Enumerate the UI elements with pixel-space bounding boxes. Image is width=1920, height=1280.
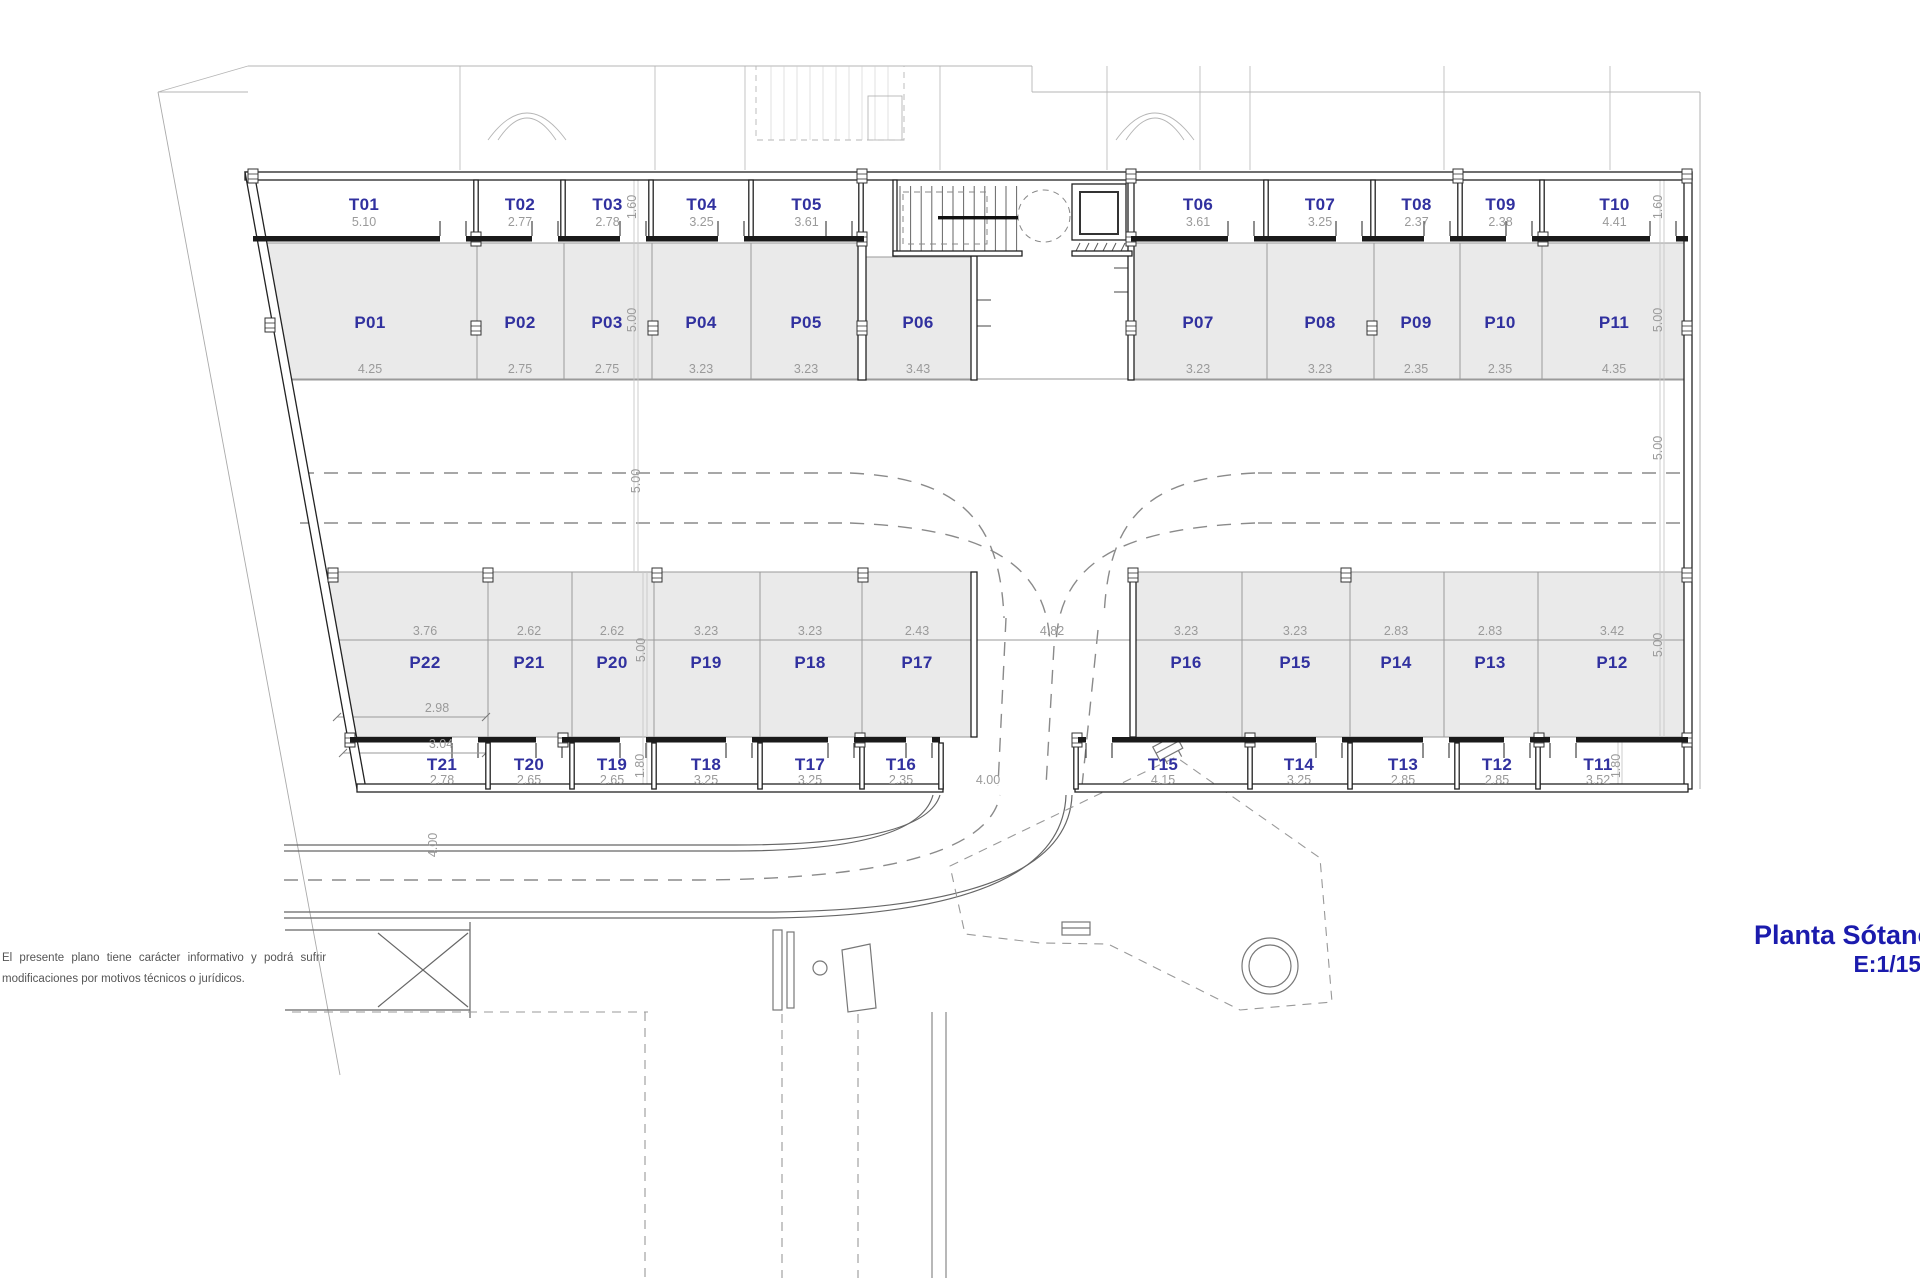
room-label-T20: T20: [514, 755, 544, 774]
room-dim-P20: 2.62: [600, 624, 624, 638]
room-label-P12: P12: [1596, 653, 1627, 672]
room-label-T09: T09: [1485, 195, 1515, 214]
room-label-P02: P02: [504, 313, 535, 332]
planter-icon: [813, 961, 827, 975]
room-dim-P17: 2.43: [905, 624, 929, 638]
storage-front-wall: [466, 236, 532, 242]
room-label-P22: P22: [409, 653, 440, 672]
column-marker: [652, 568, 662, 582]
floor-plan-page: T015.10T022.77T032.78T043.25T053.61T063.…: [0, 0, 1920, 1280]
p22-extra-dim-2: 3.04: [429, 737, 453, 751]
stair-wall: [1072, 251, 1132, 256]
room-label-P21: P21: [513, 653, 544, 672]
room-label-T03: T03: [592, 195, 622, 214]
column-marker: [265, 318, 275, 332]
room-label-P20: P20: [596, 653, 627, 672]
room-dim-P21: 2.62: [517, 624, 541, 638]
room-dim-P16: 3.23: [1174, 624, 1198, 638]
left-chain-dim-0: 1.60: [625, 195, 639, 219]
room-dim-T20: 2.65: [517, 773, 541, 787]
room-label-T04: T04: [686, 195, 716, 214]
room-label-P16: P16: [1170, 653, 1201, 672]
column-marker: [1453, 169, 1463, 183]
disclaimer-line1: El presente plano tiene carácter informa…: [2, 948, 382, 969]
p22-extra-dim-1: 2.98: [425, 701, 449, 715]
room-dim-T03: 2.78: [595, 215, 619, 229]
room-dim-T17: 3.25: [798, 773, 822, 787]
planter-icon: [787, 932, 794, 1008]
storage-front-wall: [1342, 737, 1423, 743]
room-dim-T08: 2.37: [1404, 215, 1428, 229]
room-dim-T09: 2.38: [1488, 215, 1512, 229]
arch-motifs: [488, 113, 1194, 140]
room-label-T07: T07: [1305, 195, 1335, 214]
storage-partition: [486, 743, 490, 789]
planter-icon: [773, 930, 782, 1010]
floor-plan-drawing: T015.10T022.77T032.78T043.25T053.61T063.…: [0, 0, 1920, 1280]
lane-line: [998, 618, 1006, 786]
left-chain-dim-1: 5.00: [625, 308, 639, 332]
column-marker: [1682, 321, 1692, 335]
storage-partition: [1458, 180, 1462, 238]
column-marker: [483, 568, 493, 582]
storage-partition: [860, 743, 864, 789]
storage-front-wall: [1078, 737, 1086, 743]
room-dim-P06: 3.43: [906, 362, 930, 376]
room-label-P06: P06: [902, 313, 933, 332]
room-label-P17: P17: [901, 653, 932, 672]
room-dim-P04: 3.23: [689, 362, 713, 376]
column-marker: [1341, 568, 1351, 582]
storage-front-wall: [1576, 737, 1688, 743]
disclaimer: El presente plano tiene carácter informa…: [2, 948, 382, 990]
plan-title-block: Planta Sótano E:1/150: [1754, 920, 1920, 978]
room-dim-T11: 3.52: [1586, 773, 1610, 787]
room-dim-T07: 3.25: [1308, 215, 1332, 229]
storage-partition: [939, 743, 943, 789]
road-centerline: [284, 795, 1000, 880]
column-marker: [648, 321, 658, 335]
room-label-P13: P13: [1474, 653, 1505, 672]
room-dim-T16: 2.35: [889, 773, 913, 787]
column-marker: [1682, 568, 1692, 582]
corridor-wall: [1128, 180, 1134, 380]
storage-partition: [1536, 743, 1540, 789]
room-dim-P05: 3.23: [794, 362, 818, 376]
room-dim-P01: 4.25: [358, 362, 382, 376]
upper-floor-outline: [158, 66, 1700, 1075]
storage-front-wall: [1362, 236, 1424, 242]
right-chain-dim-0: 1.60: [1651, 195, 1665, 219]
storage-partition: [474, 180, 478, 238]
room-label-P15: P15: [1279, 653, 1310, 672]
column-marker: [857, 321, 867, 335]
road-edge: [284, 795, 933, 851]
room-label-P08: P08: [1304, 313, 1335, 332]
room-label-P03: P03: [591, 313, 622, 332]
storage-partition: [1248, 743, 1252, 789]
wall-p05-p06: [858, 240, 866, 380]
storage-partition: [652, 743, 656, 789]
corridor-wall: [971, 256, 977, 380]
garden-outline: [950, 757, 1332, 1010]
upper-shaft: [868, 96, 902, 140]
room-dim-T19: 2.65: [600, 773, 624, 787]
room-dim-P02: 2.75: [508, 362, 532, 376]
planter-icon: [842, 944, 876, 1012]
room-label-P04: P04: [685, 313, 716, 332]
storage-partition: [1371, 180, 1375, 238]
room-label-T16: T16: [886, 755, 916, 774]
column-marker: [1682, 169, 1692, 183]
room-dim-T05: 3.61: [794, 215, 818, 229]
room-dim-T01: 5.10: [352, 215, 376, 229]
room-label-T19: T19: [597, 755, 627, 774]
disclaimer-line2: modificaciones por motivos técnicos o ju…: [2, 969, 382, 990]
storage-partition: [561, 180, 565, 238]
road-edge: [284, 795, 1072, 912]
storage-partition: [1348, 743, 1352, 789]
room-dim-P03: 2.75: [595, 362, 619, 376]
storage-partition: [1264, 180, 1268, 238]
storage-front-wall: [1450, 236, 1506, 242]
room-label-P09: P09: [1400, 313, 1431, 332]
parking-row-top-right: [1133, 243, 1686, 380]
upper-stair-outline: [756, 66, 904, 140]
storage-front-wall: [646, 236, 718, 242]
storage-partition: [649, 180, 653, 238]
storage-front-wall: [932, 737, 940, 743]
room-label-T13: T13: [1388, 755, 1418, 774]
room-label-P07: P07: [1182, 313, 1213, 332]
storage-partition: [859, 180, 863, 238]
column-marker: [1128, 568, 1138, 582]
room-label-P19: P19: [690, 653, 721, 672]
column-marker: [471, 321, 481, 335]
room-dim-T06: 3.61: [1186, 215, 1210, 229]
storage-front-wall: [752, 737, 828, 743]
storage-front-wall: [854, 737, 906, 743]
room-label-T21: T21: [427, 755, 457, 774]
road-edge: [284, 795, 940, 845]
room-dim-P13: 2.83: [1478, 624, 1502, 638]
room-label-T08: T08: [1401, 195, 1431, 214]
room-label-P11: P11: [1599, 313, 1629, 332]
storage-front-wall: [558, 236, 620, 242]
room-label-T14: T14: [1284, 755, 1314, 774]
lane-wall: [1130, 572, 1136, 737]
storage-front-wall: [253, 236, 440, 242]
column-marker: [328, 568, 338, 582]
room-dim-P12: 3.42: [1600, 624, 1624, 638]
storage-front-wall: [478, 737, 536, 743]
column-marker: [1126, 169, 1136, 183]
stair-wall: [893, 251, 1022, 256]
room-dim-T10: 4.41: [1602, 215, 1626, 229]
spa-circle: [1242, 938, 1298, 994]
storage-front-wall: [1254, 236, 1336, 242]
storage-partition: [1540, 180, 1544, 238]
lane-line: [1046, 646, 1054, 786]
left-chain-dim-3: 5.00: [634, 638, 648, 662]
turning-circle: [1018, 190, 1070, 242]
spa-circle-inner: [1249, 945, 1291, 987]
room-dim-P18: 3.23: [798, 624, 822, 638]
column-marker: [1126, 321, 1136, 335]
room-dim-T14: 3.25: [1287, 773, 1311, 787]
column-marker: [858, 568, 868, 582]
storage-front-wall: [1449, 737, 1504, 743]
room-label-P05: P05: [790, 313, 821, 332]
room-dim-T21: 2.78: [430, 773, 454, 787]
room-label-P01: P01: [354, 313, 385, 332]
column-marker: [857, 169, 867, 183]
lane-line: [1082, 630, 1098, 786]
room-dim-T15: 4.15: [1151, 773, 1175, 787]
room-label-P14: P14: [1380, 653, 1411, 672]
room-dim-P08: 3.23: [1308, 362, 1332, 376]
wall-top: [245, 172, 1692, 180]
storage-front-wall: [1530, 737, 1550, 743]
storage-partition: [749, 180, 753, 238]
room-label-T18: T18: [691, 755, 721, 774]
room-label-T02: T02: [505, 195, 535, 214]
right-chain-dim-3: 5.00: [1651, 633, 1665, 657]
room-label-T17: T17: [795, 755, 825, 774]
lane-dim-top: 4.82: [1040, 624, 1064, 638]
storage-front-wall: [646, 737, 726, 743]
room-dim-P22: 3.76: [413, 624, 437, 638]
column-marker: [1367, 321, 1377, 335]
room-label-T06: T06: [1183, 195, 1213, 214]
storage-partition: [758, 743, 762, 789]
room-dim-P14: 2.83: [1384, 624, 1408, 638]
room-dim-T12: 2.85: [1485, 773, 1509, 787]
storage-partition: [1074, 743, 1078, 789]
wall-right: [1684, 172, 1692, 789]
left-chain-dim-4: 1.80: [633, 754, 647, 778]
right-chain-dim-4: 1.80: [1609, 754, 1623, 778]
room-label-T10: T10: [1599, 195, 1629, 214]
left-chain-dim-2: 5.00: [629, 469, 643, 493]
storage-front-wall: [1532, 236, 1650, 242]
right-chain-dim-1: 5.00: [1651, 308, 1665, 332]
stair-handrail: [938, 216, 1018, 219]
room-label-T15: T15: [1148, 755, 1178, 774]
room-dim-P07: 3.23: [1186, 362, 1210, 376]
room-dim-T18: 3.25: [694, 773, 718, 787]
room-label-P10: P10: [1484, 313, 1515, 332]
road-edge: [284, 795, 1066, 918]
column-marker: [248, 169, 258, 183]
room-dim-T02: 2.77: [508, 215, 532, 229]
plan-scale: E:1/150: [1754, 950, 1920, 978]
lane-wall: [971, 572, 977, 737]
storage-partition: [1455, 743, 1459, 789]
room-dim-P10: 2.35: [1488, 362, 1512, 376]
storage-front-wall: [744, 236, 864, 242]
room-label-P18: P18: [794, 653, 825, 672]
storage-front-wall: [562, 737, 620, 743]
ramp-dim: 4.00: [426, 833, 440, 857]
plan-title: Planta Sótano: [1754, 920, 1920, 950]
room-label-T12: T12: [1482, 755, 1512, 774]
room-dim-P19: 3.23: [694, 624, 718, 638]
right-chain-dim-2: 5.00: [1651, 436, 1665, 460]
room-dim-T13: 2.85: [1391, 773, 1415, 787]
room-dim-P09: 2.35: [1404, 362, 1428, 376]
parking-row-top-left: [258, 243, 858, 380]
storage-front-wall: [1131, 236, 1228, 242]
lane-dim-bottom: 4.00: [976, 773, 1000, 787]
room-label-T01: T01: [349, 195, 379, 214]
room-dim-P15: 3.23: [1283, 624, 1307, 638]
storage-front-wall: [1112, 737, 1316, 743]
room-dim-P11: 4.35: [1602, 362, 1626, 376]
stair-wall: [893, 180, 897, 256]
storage-front-wall: [1676, 236, 1688, 242]
storage-partition: [570, 743, 574, 789]
room-dim-T04: 3.25: [689, 215, 713, 229]
room-label-T05: T05: [791, 195, 821, 214]
